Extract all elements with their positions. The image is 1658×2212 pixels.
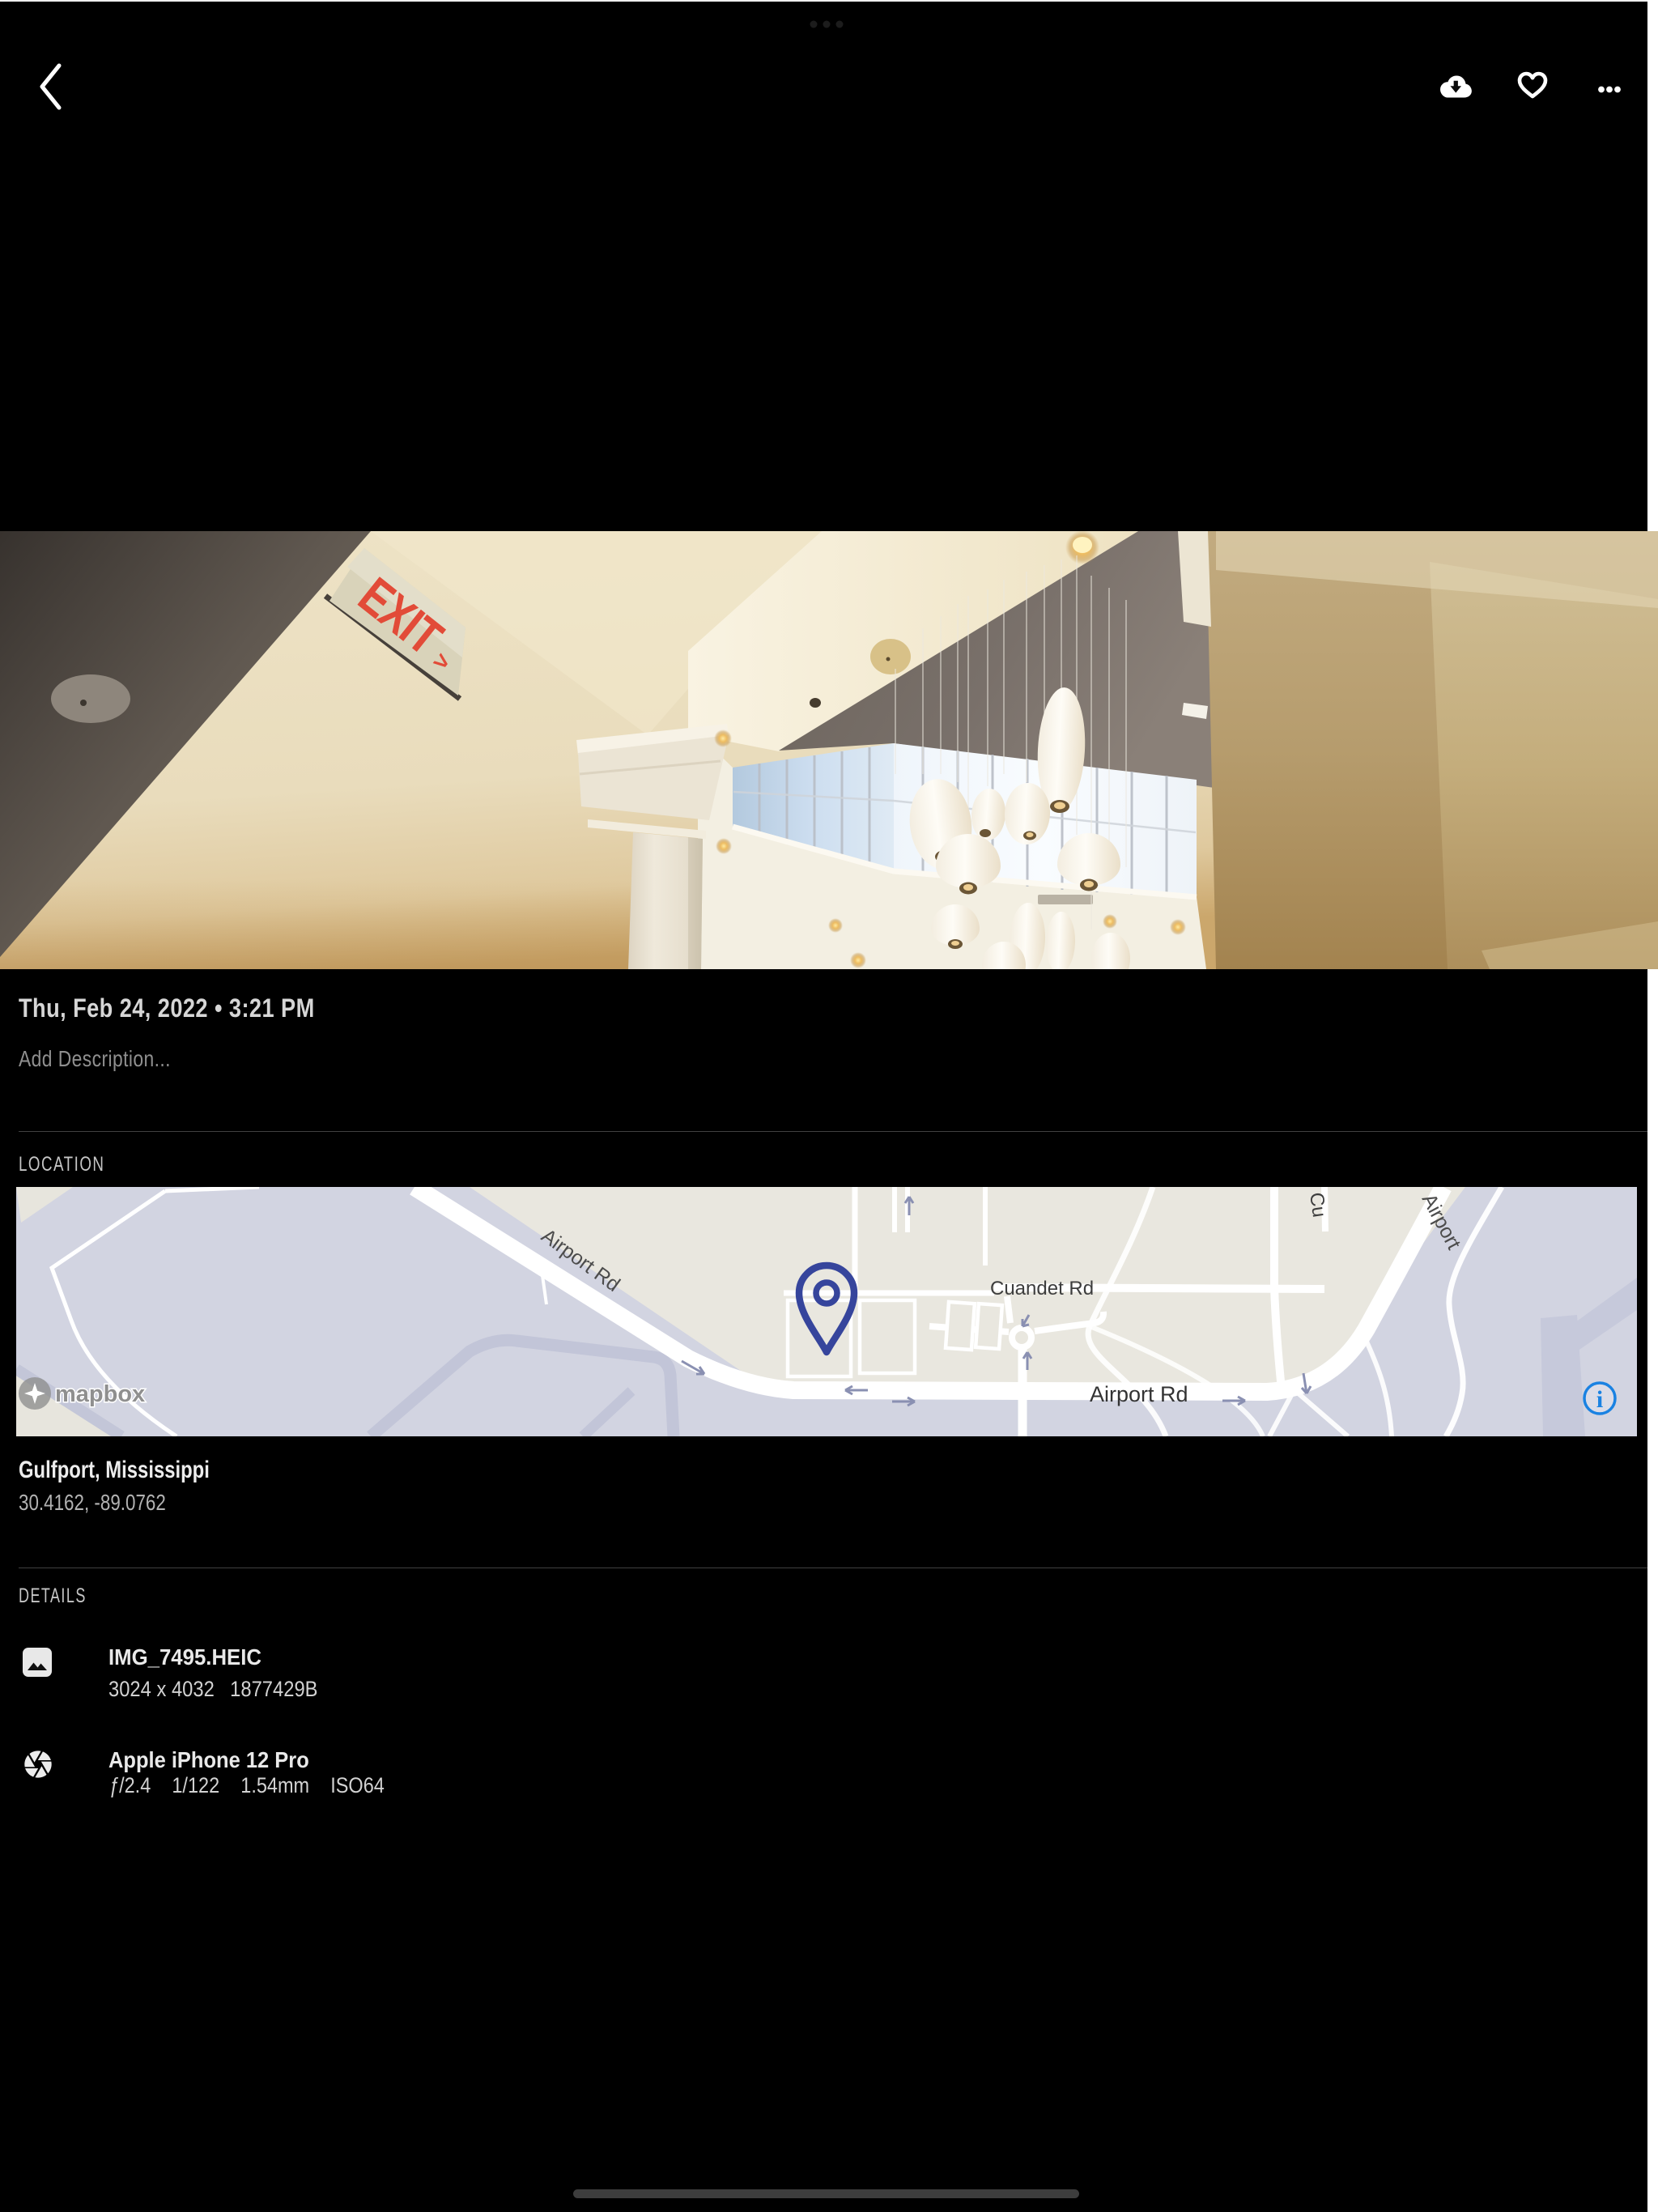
- svg-text:Cuandet Rd: Cuandet Rd: [990, 1278, 1094, 1300]
- svg-text:Airport Rd: Airport Rd: [1090, 1382, 1188, 1406]
- svg-text:i: i: [1596, 1386, 1603, 1413]
- svg-text:mapbox: mapbox: [55, 1381, 145, 1407]
- svg-text:Cu: Cu: [1305, 1191, 1330, 1219]
